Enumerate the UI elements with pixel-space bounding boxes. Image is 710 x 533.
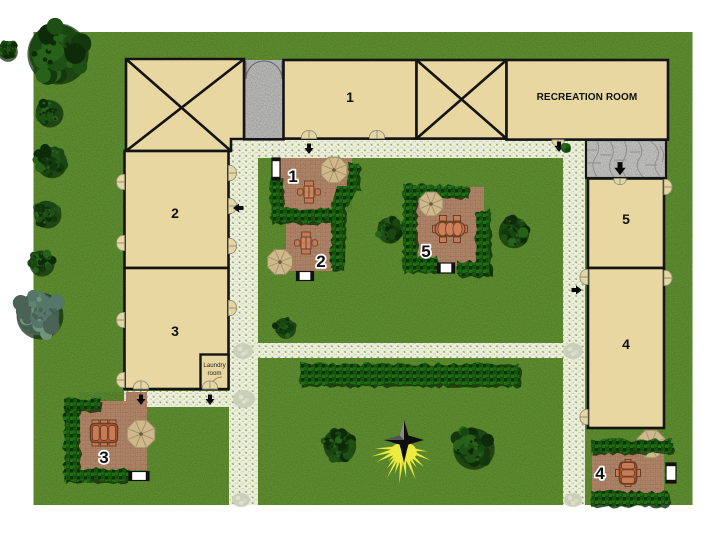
svg-text:1: 1 [288,167,297,186]
svg-text:RECREATION ROOM: RECREATION ROOM [537,92,638,103]
svg-text:4: 4 [622,336,630,352]
svg-text:1: 1 [346,89,354,105]
svg-text:3: 3 [171,323,179,339]
svg-text:3: 3 [99,448,108,467]
svg-text:2: 2 [316,252,325,271]
svg-text:Laundry: Laundry [203,362,226,369]
svg-text:4: 4 [595,464,605,483]
svg-text:room: room [207,370,221,377]
svg-text:5: 5 [622,211,630,227]
svg-text:5: 5 [421,242,430,261]
svg-text:2: 2 [171,205,179,221]
